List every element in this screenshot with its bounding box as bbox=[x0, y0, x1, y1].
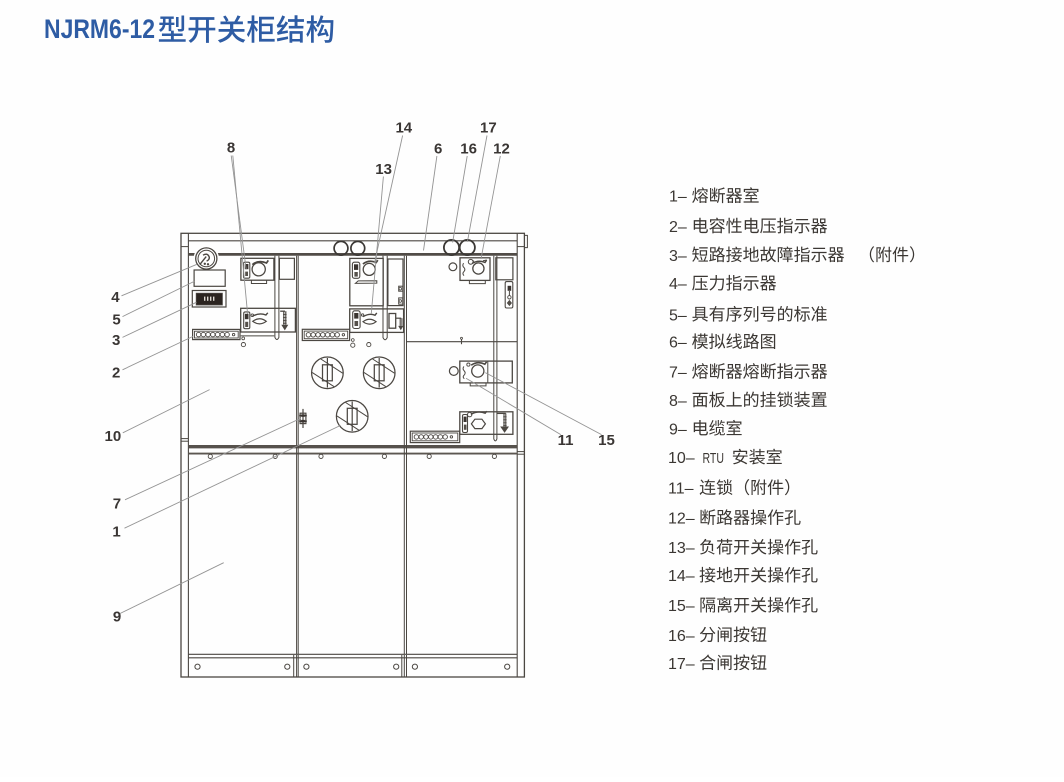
svg-text:8–: 8– bbox=[669, 393, 687, 410]
svg-text:13–: 13– bbox=[668, 540, 695, 557]
svg-text:6–: 6– bbox=[669, 335, 687, 352]
svg-text:10: 10 bbox=[105, 428, 122, 445]
svg-text:RTU: RTU bbox=[703, 450, 725, 467]
svg-text:4: 4 bbox=[111, 289, 120, 306]
svg-text:14: 14 bbox=[395, 120, 412, 137]
svg-text:15–: 15– bbox=[668, 598, 695, 615]
svg-text:1–: 1– bbox=[669, 189, 687, 206]
svg-text:10–: 10– bbox=[668, 450, 695, 467]
svg-text:16–: 16– bbox=[668, 628, 695, 645]
svg-text:3: 3 bbox=[112, 332, 120, 349]
svg-text:13: 13 bbox=[375, 161, 392, 178]
svg-text:17–: 17– bbox=[668, 656, 695, 673]
svg-text:12: 12 bbox=[493, 140, 510, 157]
svg-text:9: 9 bbox=[113, 609, 121, 626]
svg-text:2–: 2– bbox=[669, 219, 687, 236]
svg-text:17: 17 bbox=[480, 120, 497, 137]
svg-text:12–: 12– bbox=[668, 511, 695, 528]
svg-text:8: 8 bbox=[227, 139, 235, 156]
svg-text:7: 7 bbox=[113, 496, 121, 513]
svg-text:15: 15 bbox=[598, 432, 615, 449]
svg-text:1: 1 bbox=[112, 523, 120, 540]
svg-text:6: 6 bbox=[434, 140, 442, 157]
svg-text:11: 11 bbox=[558, 432, 574, 449]
svg-text:2: 2 bbox=[112, 365, 120, 382]
svg-text:4–: 4– bbox=[669, 276, 687, 293]
svg-text:14–: 14– bbox=[668, 568, 695, 585]
svg-text:5–: 5– bbox=[669, 307, 687, 324]
svg-text:9–: 9– bbox=[669, 421, 687, 438]
svg-text:5: 5 bbox=[112, 311, 120, 328]
svg-text:3–: 3– bbox=[669, 248, 687, 265]
svg-text:7–: 7– bbox=[669, 365, 687, 382]
svg-text:11–: 11– bbox=[668, 481, 694, 498]
svg-text:16: 16 bbox=[460, 140, 477, 157]
svg-text:NJRM6-12: NJRM6-12 bbox=[44, 14, 155, 44]
